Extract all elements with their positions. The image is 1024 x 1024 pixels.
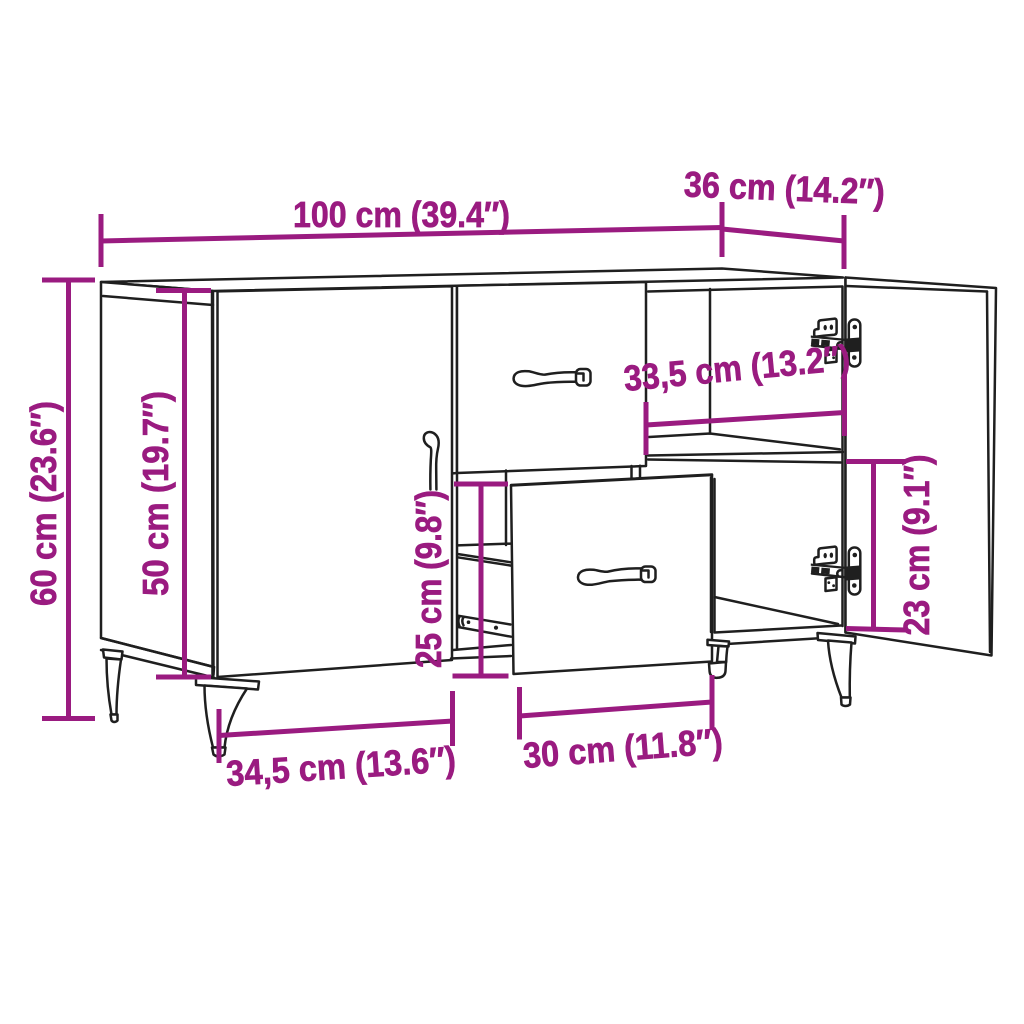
svg-text:25 cm (9.8″): 25 cm (9.8″) [408, 490, 449, 668]
svg-text:100 cm (39.4″): 100 cm (39.4″) [293, 194, 510, 235]
svg-text:50 cm (19.7″): 50 cm (19.7″) [135, 391, 176, 596]
svg-text:36 cm (14.2″): 36 cm (14.2″) [683, 163, 885, 212]
svg-text:60 cm (23.6″): 60 cm (23.6″) [23, 401, 64, 606]
svg-text:23 cm (9.1″): 23 cm (9.1″) [896, 455, 937, 636]
